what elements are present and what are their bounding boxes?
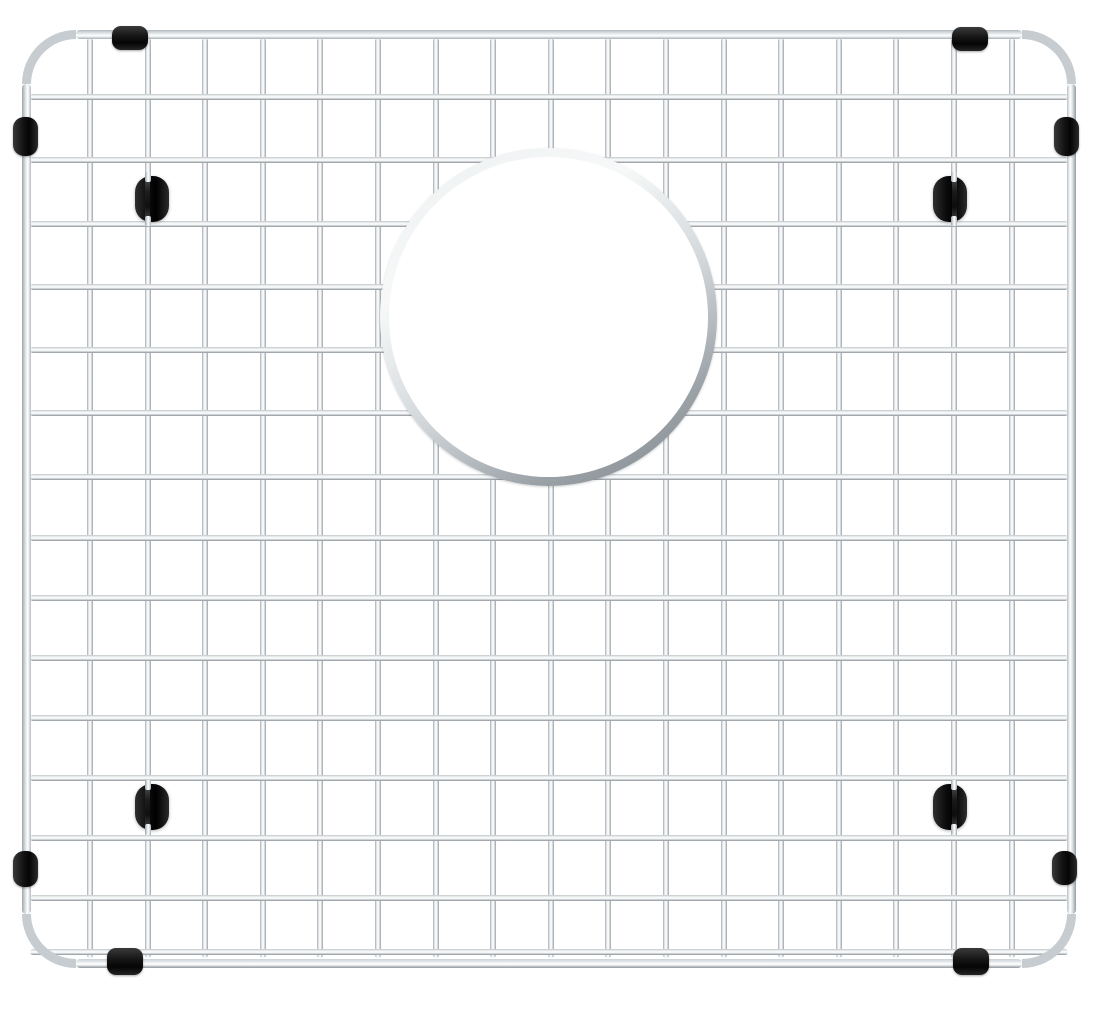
vertical-wire-4 xyxy=(260,38,266,958)
vertical-wire-7 xyxy=(433,38,439,958)
rubber-foot-bottom-right-groove xyxy=(952,788,957,826)
horizontal-wire-9 xyxy=(30,595,1068,601)
grid-frame-right xyxy=(1067,84,1076,914)
rubber-foot-top-right-groove xyxy=(952,180,957,218)
drain-opening-ring xyxy=(380,148,717,486)
vertical-wire-13 xyxy=(778,38,784,958)
vertical-wire-11 xyxy=(663,38,669,958)
vertical-wire-14 xyxy=(836,38,842,958)
rubber-bumper-left-upper xyxy=(13,117,38,156)
grid-frame-corner-top-right xyxy=(1022,30,1076,84)
horizontal-wire-15 xyxy=(30,949,1068,955)
vertical-wire-15 xyxy=(893,38,899,958)
horizontal-wire-10 xyxy=(30,655,1068,661)
rubber-foot-top-right-wire-notch-top xyxy=(951,172,957,182)
grid-frame-corner-bottom-left xyxy=(22,914,76,968)
rubber-foot-top-left-wire-notch-top xyxy=(145,172,151,182)
rubber-foot-bottom-left-wire-notch-bottom xyxy=(145,824,151,834)
rubber-foot-top-left-groove xyxy=(145,180,150,218)
rubber-clip-bottom-left xyxy=(107,948,143,975)
grid-frame-left xyxy=(22,84,31,914)
horizontal-wire-13 xyxy=(30,835,1068,841)
vertical-wire-1 xyxy=(87,38,93,958)
rubber-bumper-right-upper xyxy=(1054,117,1079,156)
rubber-clip-bottom-right xyxy=(953,948,989,975)
horizontal-wire-12 xyxy=(30,775,1068,781)
rubber-foot-top-left xyxy=(135,176,169,222)
rubber-foot-bottom-right-wire-notch-bottom xyxy=(951,824,957,834)
vertical-wire-6 xyxy=(375,38,381,958)
rubber-foot-bottom-left-wire-notch-top xyxy=(145,780,151,790)
vertical-wire-3 xyxy=(202,38,208,958)
rubber-foot-top-left-wire-notch-bottom xyxy=(145,216,151,226)
horizontal-wire-8 xyxy=(30,535,1068,541)
horizontal-wire-14 xyxy=(30,895,1068,901)
horizontal-wire-1 xyxy=(30,94,1068,100)
rubber-foot-bottom-left-groove xyxy=(145,788,150,826)
rubber-foot-bottom-left xyxy=(135,784,169,830)
sink-grid-product-photo xyxy=(0,0,1100,1012)
vertical-wire-12 xyxy=(721,38,727,958)
rubber-foot-bottom-right xyxy=(933,784,967,830)
grid-frame-corner-top-left xyxy=(22,30,76,84)
rubber-clip-top-left xyxy=(112,26,148,50)
vertical-wire-5 xyxy=(317,38,323,958)
grid-frame-top xyxy=(76,30,1022,39)
rubber-bumper-left-lower xyxy=(13,851,38,887)
vertical-wire-17 xyxy=(1009,38,1015,958)
rubber-foot-top-right xyxy=(933,176,967,222)
grid-frame-bottom xyxy=(76,959,1022,968)
rubber-foot-bottom-right-wire-notch-top xyxy=(951,780,957,790)
grid-frame-corner-bottom-right xyxy=(1022,914,1076,968)
horizontal-wire-11 xyxy=(30,715,1068,721)
rubber-foot-top-right-wire-notch-bottom xyxy=(951,216,957,226)
rubber-clip-top-right xyxy=(952,27,988,51)
rubber-bumper-right-lower xyxy=(1052,851,1077,885)
